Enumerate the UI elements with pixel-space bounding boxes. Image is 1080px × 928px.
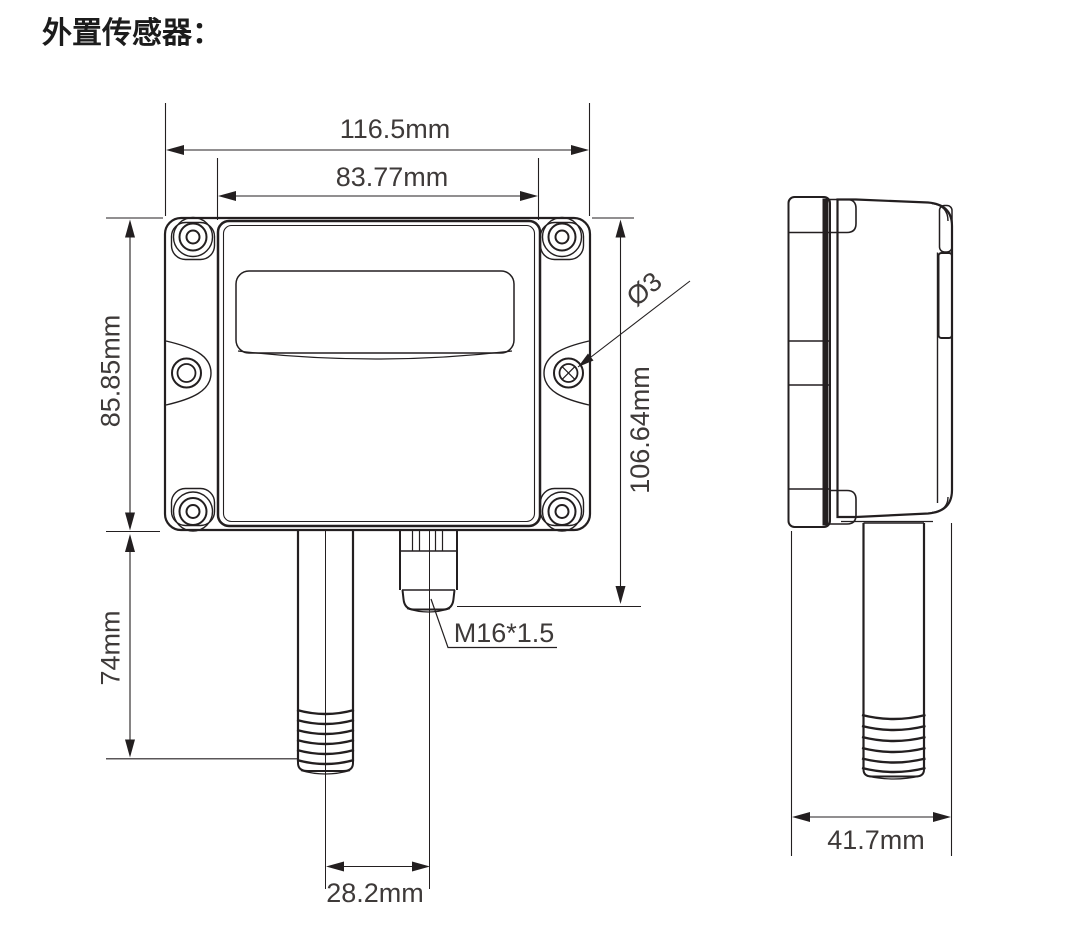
ear-notch-bottom <box>830 491 857 525</box>
mounting-ear-middle-right <box>544 341 589 405</box>
dimension-inner-width: 83.77mm <box>218 158 539 220</box>
cable-gland <box>400 530 457 889</box>
probe-to-gland-label: 28.2mm <box>326 878 424 908</box>
gland-cap <box>403 590 455 610</box>
page-title: 外置传感器： <box>42 17 222 50</box>
mounting-ear-bottom-right <box>541 489 584 532</box>
overall-height-label: 106.64mm <box>625 366 655 494</box>
mounting-ear-bottom-left <box>172 489 215 532</box>
dimension-hole-diameter: Ø3 <box>578 266 690 367</box>
body-side-outline <box>838 200 953 518</box>
screw-hole <box>172 359 201 388</box>
mounting-ear-middle-left <box>166 341 211 405</box>
screw-hole <box>549 498 576 525</box>
mounting-ear-top-right <box>541 218 584 260</box>
hole-diameter-label: Ø3 <box>621 266 668 312</box>
screw-hole <box>180 498 207 525</box>
dimension-body-height: 85.85mm <box>96 218 164 532</box>
probe-length-label: 74mm <box>96 610 126 685</box>
front-view <box>165 218 590 890</box>
sensor-dimension-page: 外置传感器： <box>0 0 1080 928</box>
body-outline <box>218 221 540 526</box>
depth-label: 41.7mm <box>827 825 925 855</box>
side-latch <box>939 253 953 338</box>
sensor-probe-side <box>862 523 926 779</box>
label-window-arc <box>238 351 512 359</box>
dimension-probe-to-gland: 28.2mm <box>326 862 430 909</box>
sensor-dimension-diagram: 外置传感器： <box>0 0 1080 928</box>
label-window <box>236 271 514 353</box>
sensor-probe-front <box>297 530 354 889</box>
side-view <box>789 197 953 779</box>
dimension-probe-length: 74mm <box>96 534 298 759</box>
screw-hole <box>180 224 207 251</box>
gland-thread-label: M16*1.5 <box>454 618 555 648</box>
mounting-ear-top-left <box>172 218 215 260</box>
body-inner-line <box>224 226 535 522</box>
dimension-overall-height: 106.64mm <box>457 218 655 607</box>
dimension-depth: 41.7mm <box>792 523 952 856</box>
inner-width-label: 83.77mm <box>336 162 449 192</box>
flange-plate-bar <box>823 199 829 526</box>
ear-notch-top <box>830 200 857 233</box>
body-height-label: 85.85mm <box>96 315 126 428</box>
flange-outline <box>165 218 590 530</box>
outer-width-label: 116.5mm <box>340 114 451 144</box>
screw-hole <box>549 224 576 251</box>
